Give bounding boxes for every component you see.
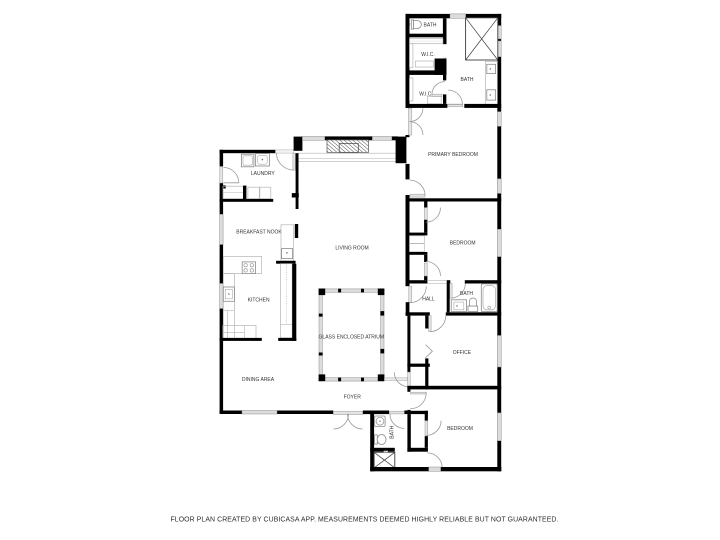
svg-text:HALL: HALL	[422, 297, 435, 303]
svg-text:BATH: BATH	[460, 291, 473, 297]
svg-text:W.I.C.: W.I.C.	[419, 92, 433, 98]
svg-text:DINING AREA: DINING AREA	[242, 377, 275, 383]
svg-text:BEDROOM: BEDROOM	[450, 240, 476, 246]
svg-text:GLASS ENCLOSED ATRIUM: GLASS ENCLOSED ATRIUM	[319, 335, 384, 341]
svg-text:FOYER: FOYER	[344, 395, 362, 401]
svg-text:BATH: BATH	[424, 23, 437, 29]
svg-text:BATH: BATH	[461, 77, 474, 83]
svg-text:KITCHEN: KITCHEN	[248, 298, 270, 304]
svg-text:OFFICE: OFFICE	[453, 350, 472, 356]
svg-text:W.I.C.: W.I.C.	[421, 52, 435, 58]
svg-text:LIVING ROOM: LIVING ROOM	[335, 245, 368, 251]
svg-text:BEDROOM: BEDROOM	[447, 426, 473, 432]
svg-text:BATH: BATH	[390, 425, 396, 438]
svg-text:BREAKFAST NOOK: BREAKFAST NOOK	[236, 230, 282, 236]
svg-text:LAUNDRY: LAUNDRY	[251, 171, 275, 177]
svg-text:PRIMARY BEDROOM: PRIMARY BEDROOM	[428, 152, 478, 158]
svg-text:FLOOR PLAN CREATED BY CUBICASA: FLOOR PLAN CREATED BY CUBICASA APP. MEAS…	[170, 517, 558, 524]
